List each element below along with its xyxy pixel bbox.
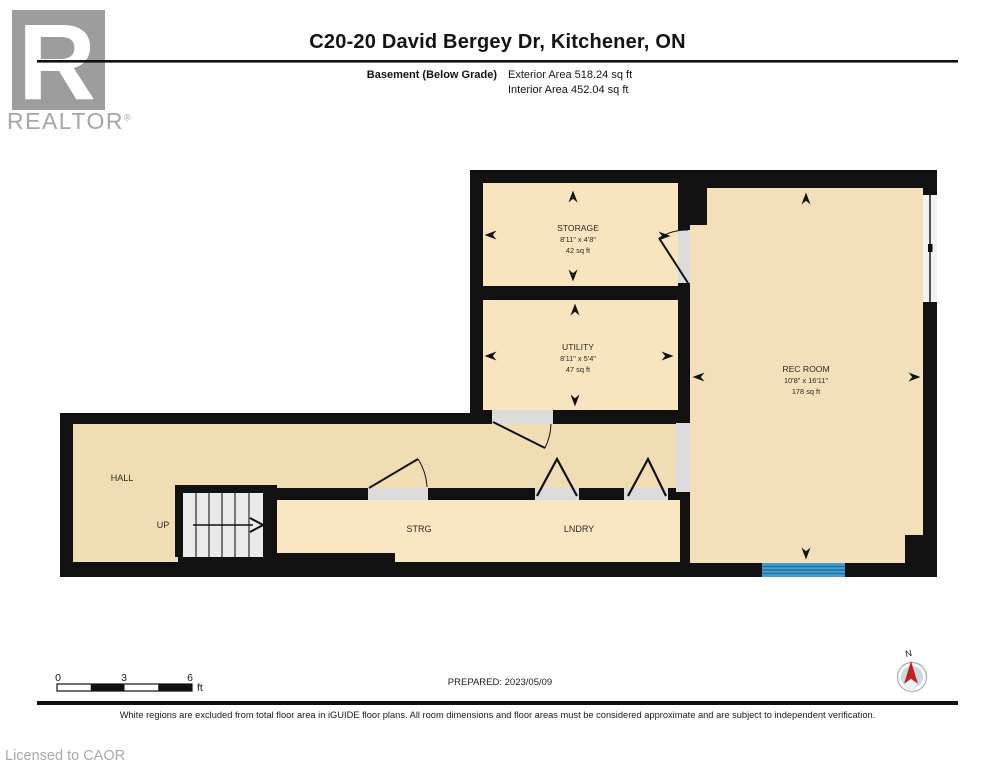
licensed-to-text: Licensed to CAOR [5, 748, 125, 764]
sliding-door [762, 563, 845, 577]
hall-label: HALL [111, 473, 134, 483]
rec-room-area: 178 sq ft [792, 387, 820, 396]
rec-room-dims: 10'8" x 16'11" [784, 376, 828, 385]
up-label: UP [157, 520, 170, 530]
lndry-label: LNDRY [564, 524, 594, 534]
floor-plan-page: R [0, 0, 995, 768]
scale-tick-3: 3 [121, 672, 127, 684]
floor-plan-canvas: R [0, 0, 995, 768]
floor-level-label: Basement (Below Grade) [300, 69, 497, 81]
strg-label: STRG [406, 524, 431, 534]
rec-room-label: REC ROOM [782, 364, 829, 374]
registered-mark: ® [124, 112, 132, 122]
scale-bar: 0 3 6 ft [55, 672, 203, 694]
disclaimer-text: White regions are excluded from total fl… [0, 710, 995, 720]
hall-left-floor [73, 424, 178, 562]
compass-north-label: N [904, 648, 912, 659]
compass-icon: N [898, 648, 927, 692]
utility-room-dims: 8'11" x 5'4" [560, 354, 596, 363]
scale-tick-6: 6 [187, 672, 193, 684]
scale-tick-0: 0 [55, 672, 61, 684]
realtor-text: REALTOR [7, 108, 124, 134]
footer-rule [37, 701, 958, 705]
utility-room-area: 47 sq ft [566, 365, 590, 374]
window [923, 195, 937, 302]
exterior-area: Exterior Area 518.24 sq ft [508, 69, 632, 81]
scale-unit: ft [197, 682, 203, 694]
strg-lndry-floor [277, 500, 680, 562]
storage-room-area: 42 sq ft [566, 246, 590, 255]
realtor-wordmark: REALTOR® [7, 108, 132, 135]
header-rule [37, 60, 958, 63]
storage-room-label: STORAGE [557, 223, 599, 233]
strg-bottom-wall-step [277, 553, 395, 562]
storage-room-dims: 8'11" x 4'8" [560, 235, 596, 244]
utility-room-label: UTILITY [562, 342, 594, 352]
interior-area: Interior Area 452.04 sq ft [508, 84, 628, 96]
page-title: C20-20 David Bergey Dr, Kitchener, ON [0, 31, 995, 54]
prepared-date: PREPARED: 2023/05/09 [380, 677, 620, 688]
